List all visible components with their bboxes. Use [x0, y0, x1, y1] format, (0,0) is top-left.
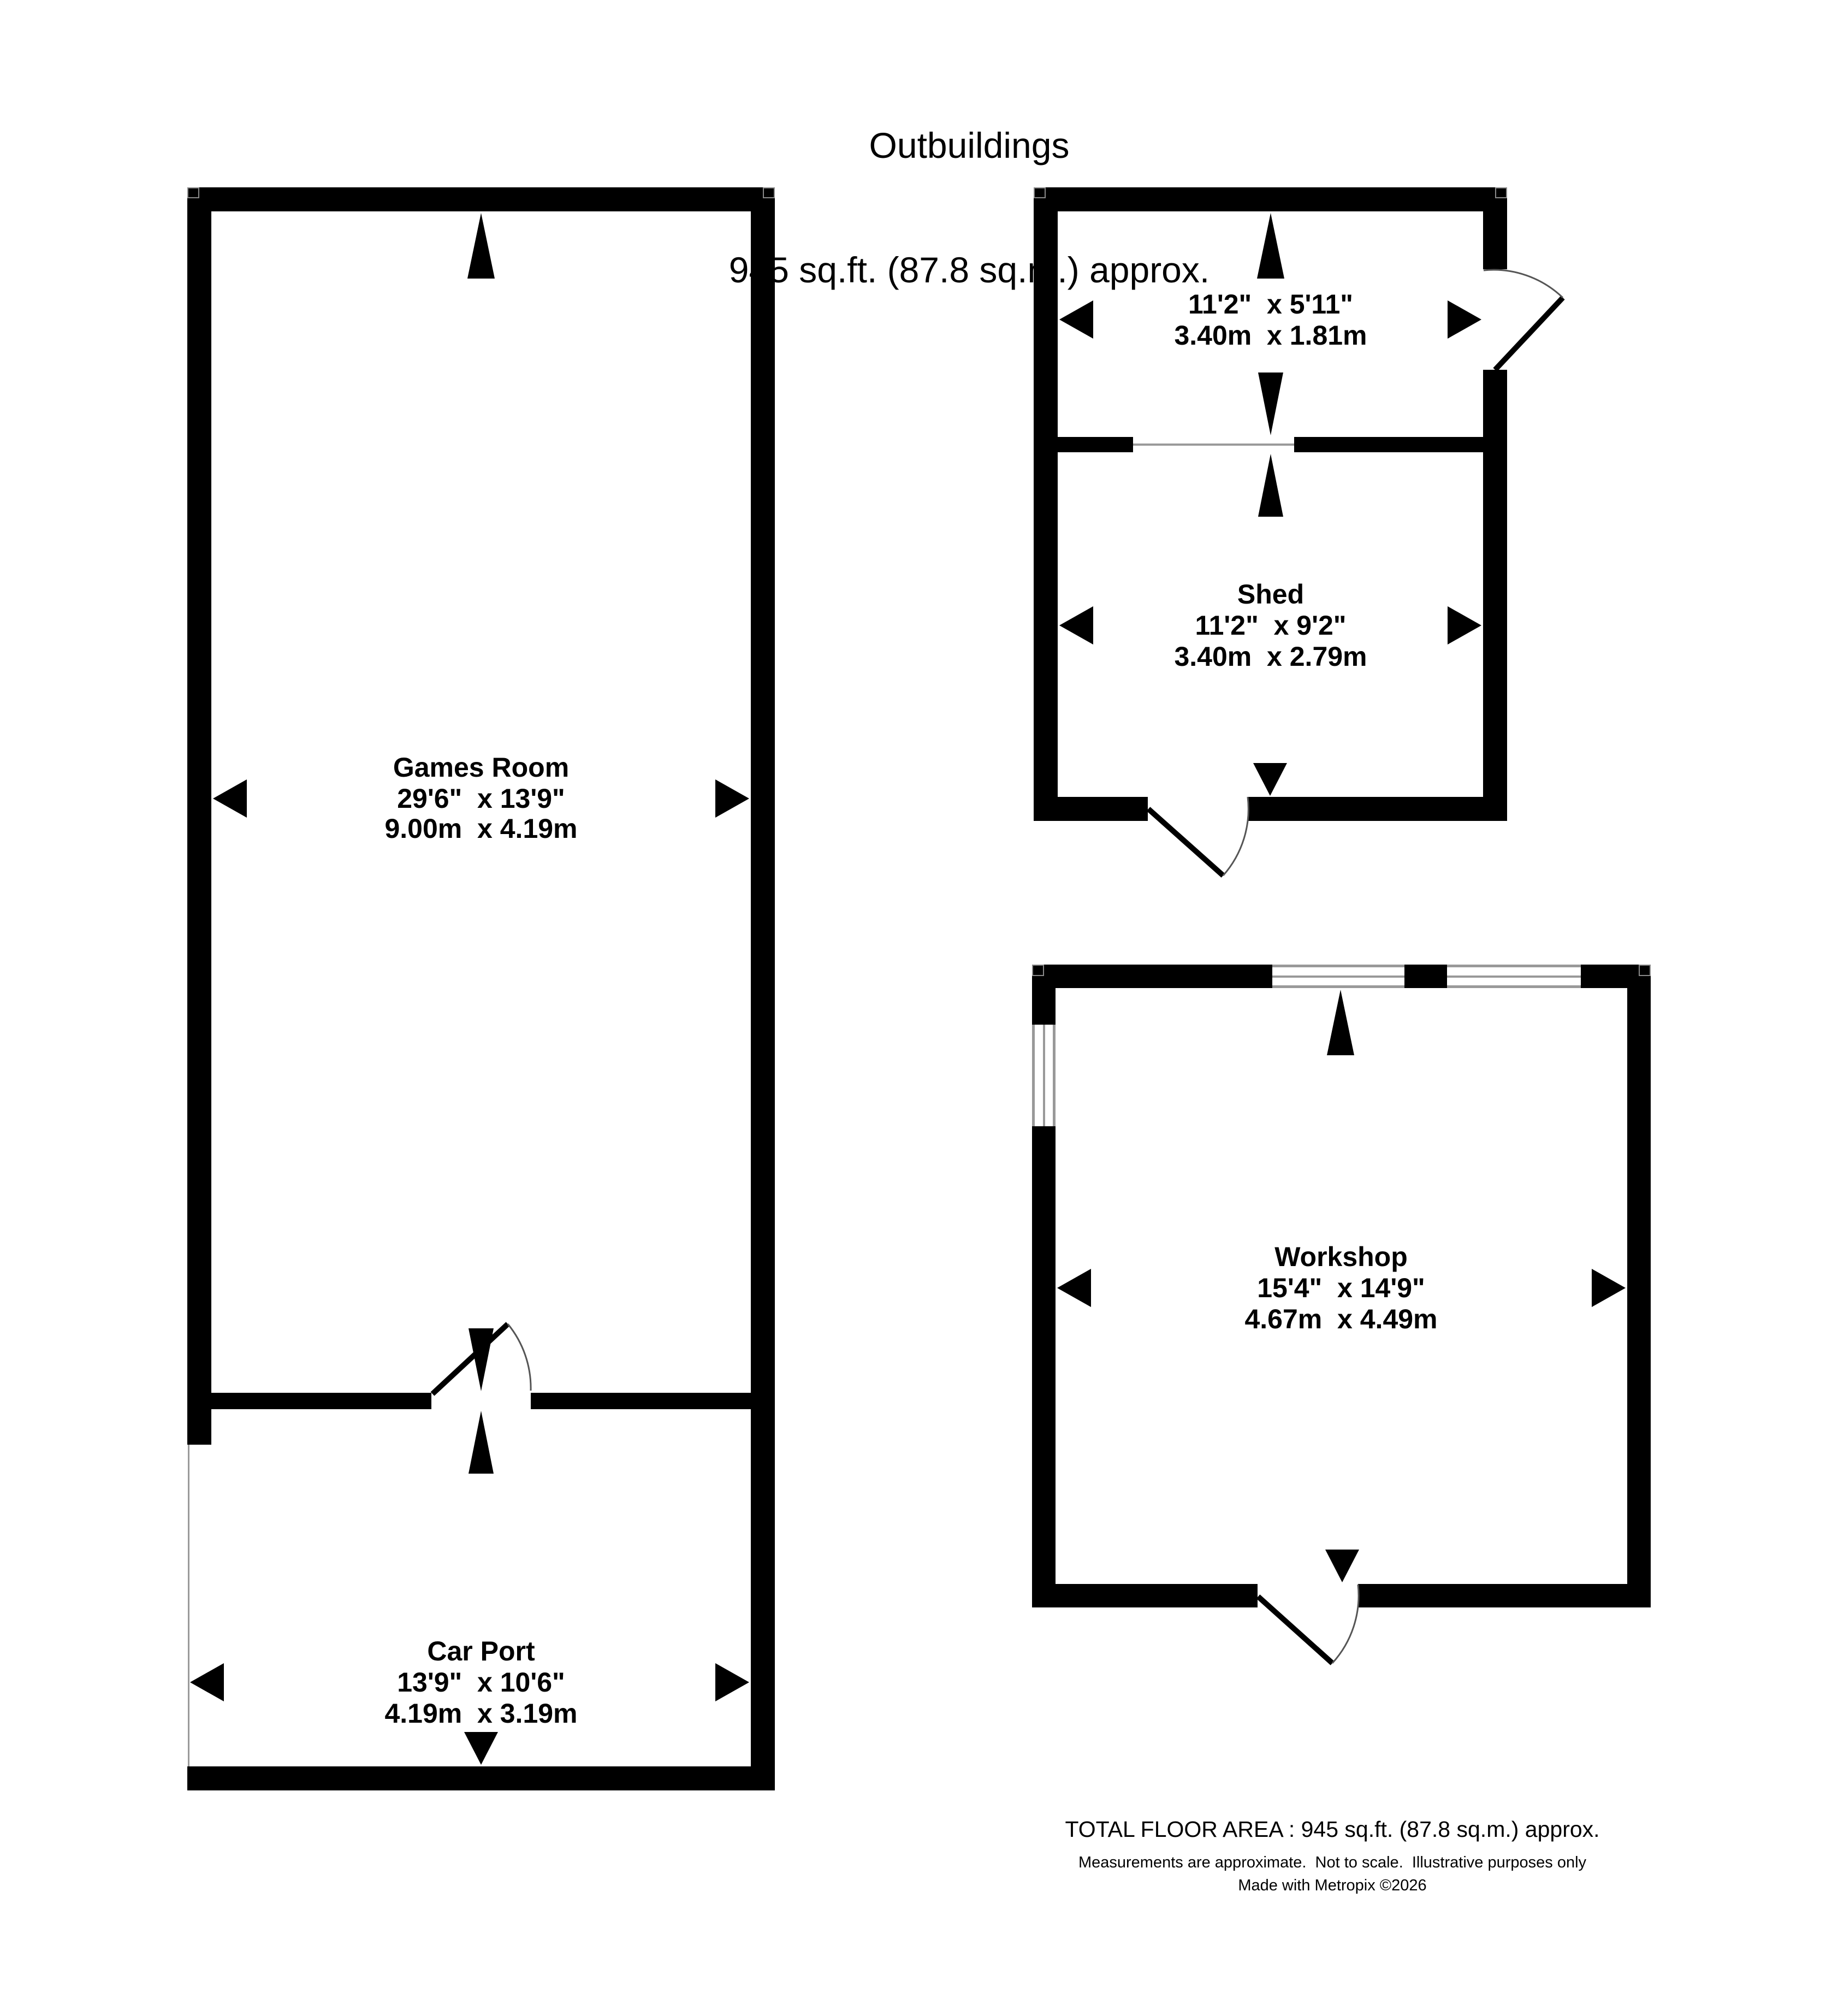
- shed-wall-bottom-right: [1248, 797, 1507, 821]
- store-shed-opening-line: [1133, 444, 1294, 446]
- door-leaf: [1258, 1597, 1332, 1663]
- door-swing-arc: [1332, 1585, 1359, 1663]
- window-mullion-line: [1043, 1025, 1045, 1126]
- door-leaf: [1148, 809, 1223, 876]
- workshop-wall-bottom-right: [1358, 1584, 1651, 1607]
- corner-notch: [1639, 965, 1651, 976]
- window-mullion-line: [1447, 976, 1581, 978]
- disclaimer-text: Measurements are approximate. Not to sca…: [1078, 1854, 1586, 1872]
- corner-notch: [187, 187, 199, 198]
- carport-dims-m: 4.19m x 3.19m: [384, 1698, 577, 1729]
- shed-wall-left: [1034, 187, 1058, 821]
- store-shed-divider-left: [1034, 437, 1133, 452]
- shed-wall-bottom-left: [1034, 797, 1148, 821]
- corner-notch: [763, 187, 775, 198]
- measure-arrow-left-icon: [213, 779, 247, 818]
- credit-text: Made with Metropix ©2026: [1238, 1877, 1426, 1895]
- games-carport-divider-left: [187, 1393, 431, 1409]
- measure-arrow-up-icon: [469, 1411, 494, 1474]
- games-wall-top: [187, 187, 775, 211]
- measure-arrow-down-icon: [1258, 373, 1283, 435]
- shed-dims-m: 3.40m x 2.79m: [1174, 641, 1367, 672]
- measure-arrow-up-icon: [467, 213, 495, 279]
- carport-dims-ft: 13'9" x 10'6": [397, 1666, 565, 1698]
- shed-name: Shed: [1237, 578, 1304, 610]
- measure-arrow-down-icon: [469, 1328, 494, 1391]
- measure-arrow-down-icon: [1253, 763, 1287, 796]
- workshop-wall-bottom-left: [1032, 1584, 1258, 1607]
- door-swing-arc: [508, 1324, 531, 1391]
- shed-wall-right-upper: [1483, 187, 1507, 269]
- measure-arrow-right-icon: [1592, 1269, 1626, 1307]
- shed-wall-top: [1034, 187, 1507, 211]
- door-swing-arc: [1223, 797, 1248, 876]
- store-dims-ft: 11'2" x 5'11": [1188, 288, 1353, 320]
- corner-notch: [1495, 187, 1507, 198]
- window: [1272, 965, 1404, 988]
- workshop-name: Workshop: [1274, 1241, 1408, 1273]
- workshop-wall-left-lower: [1032, 1126, 1056, 1607]
- plan-title: Outbuildings 945 sq.ft. (87.8 sq.m.) app…: [729, 42, 1209, 332]
- games-room-dims-ft: 29'6" x 13'9": [397, 783, 565, 814]
- total-floor-area-text: TOTAL FLOOR AREA : 945 sq.ft. (87.8 sq.m…: [1065, 1817, 1599, 1842]
- measure-arrow-right-icon: [715, 1663, 749, 1701]
- measure-arrow-left-icon: [1057, 1269, 1091, 1307]
- shed-dims-ft: 11'2" x 9'2": [1195, 610, 1347, 641]
- floorplan-page: { "title": { "line1": "Outbuildings", "l…: [0, 0, 1838, 2016]
- corner-notch: [1032, 965, 1044, 976]
- games-wall-right: [751, 187, 775, 1790]
- workshop-wall-right: [1627, 965, 1651, 1607]
- measure-arrow-right-icon: [1448, 300, 1481, 339]
- window: [1447, 965, 1581, 988]
- workshop-wall-top-seg2: [1404, 965, 1447, 988]
- store-dims-m: 3.40m x 1.81m: [1174, 320, 1367, 351]
- carport-wall-bottom: [187, 1766, 775, 1790]
- window: [1032, 1025, 1056, 1126]
- workshop-wall-top-seg1: [1032, 965, 1272, 988]
- corner-notch: [1034, 187, 1046, 198]
- window-mullion-line: [1272, 976, 1404, 978]
- measure-arrow-down-icon: [464, 1732, 498, 1765]
- measure-arrow-left-icon: [190, 1663, 224, 1701]
- measure-arrow-right-icon: [1448, 606, 1481, 645]
- measure-arrow-up-icon: [1257, 213, 1284, 279]
- games-room-name: Games Room: [393, 752, 569, 783]
- carport-open-side-line: [188, 1445, 189, 1766]
- measure-arrow-right-icon: [715, 779, 749, 818]
- plan-title-line2: 945 sq.ft. (87.8 sq.m.) approx.: [729, 249, 1209, 291]
- door-swing-arc: [1484, 270, 1563, 298]
- workshop-dims-ft: 15'4" x 14'9": [1257, 1272, 1425, 1304]
- games-carport-divider-right: [531, 1393, 775, 1409]
- games-wall-left: [187, 187, 211, 1445]
- measure-arrow-up-icon: [1327, 990, 1354, 1055]
- store-shed-divider-right: [1294, 437, 1507, 452]
- carport-name: Car Port: [427, 1635, 535, 1667]
- measure-arrow-left-icon: [1059, 606, 1093, 645]
- measure-arrow-down-icon: [1325, 1550, 1359, 1582]
- measure-arrow-up-icon: [1258, 454, 1283, 517]
- games-room-dims-m: 9.00m x 4.19m: [384, 813, 577, 844]
- door-leaf: [1495, 298, 1563, 370]
- plan-title-line1: Outbuildings: [729, 125, 1209, 166]
- measure-arrow-left-icon: [1059, 300, 1093, 339]
- workshop-dims-m: 4.67m x 4.49m: [1244, 1303, 1437, 1335]
